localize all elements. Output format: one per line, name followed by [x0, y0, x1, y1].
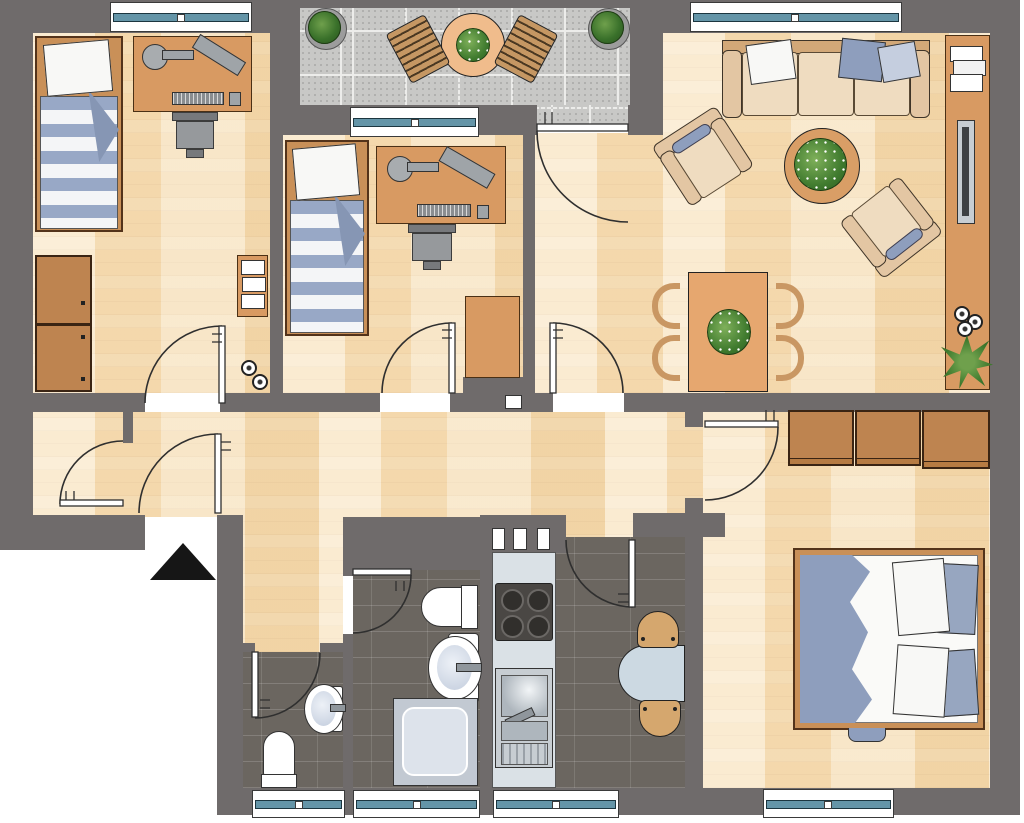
- tv-panel: [957, 120, 975, 224]
- dining-table: [688, 272, 768, 392]
- desk-lamp-arm: [162, 50, 194, 60]
- balcony-plant-right: [591, 11, 624, 44]
- bed-child-2: [285, 140, 369, 336]
- wall-shaft-pedestal: [463, 377, 523, 393]
- bed-blanket-overhang: [848, 728, 886, 742]
- desk-child-1: [133, 36, 252, 112]
- deco-candle-2: [252, 374, 268, 390]
- double-bed: [793, 548, 985, 730]
- desk-child-2: [376, 146, 506, 224]
- sofa: [722, 40, 930, 118]
- balcony-door-threshold: [537, 105, 628, 125]
- desk-chair-child-2: [408, 224, 456, 270]
- kitchen-sink: [495, 668, 553, 768]
- bed-pillow-white-2: [893, 644, 950, 717]
- bed-pillow: [292, 143, 360, 200]
- bathroom-toilet-tank: [461, 585, 478, 629]
- wardrobe-unit-1: [788, 410, 854, 466]
- chair-back: [172, 112, 218, 121]
- balcony-plant-pot-left: [305, 8, 347, 50]
- tea-candle-3: [957, 321, 973, 337]
- vent-window-1: [492, 528, 505, 550]
- door-leaf-balcony: [537, 124, 628, 131]
- window-master-bedroom: [763, 789, 894, 818]
- window-kitchen: [493, 790, 619, 818]
- chair-seat: [176, 121, 214, 149]
- towel-1: [241, 260, 265, 275]
- sofa-pillow-lightblue: [877, 41, 921, 83]
- dining-area-floor: [535, 133, 663, 393]
- sink-drainer: [501, 743, 548, 765]
- desk-keyboard: [172, 92, 224, 105]
- wardrobe-child-1: [35, 255, 92, 392]
- wall-main-a: [0, 393, 145, 412]
- window-living-room: [690, 2, 902, 32]
- desk-mouse: [477, 205, 489, 219]
- table-plant: [456, 28, 490, 62]
- kitchen-chair-top: [637, 611, 679, 648]
- wall-right: [990, 0, 1020, 815]
- balcony-table: [441, 13, 505, 77]
- desk-monitor: [192, 34, 246, 76]
- wall-divider-bedroom2-living: [523, 105, 535, 393]
- entrance-arrow: [150, 543, 216, 580]
- cabinet-child-2: [465, 296, 520, 378]
- wall-kitchen-east: [685, 537, 703, 788]
- desk-lamp-arm: [407, 162, 439, 172]
- wall-divider-bedrooms: [270, 33, 283, 412]
- wall-vent-square: [505, 395, 522, 409]
- dining-table-plant: [707, 309, 751, 355]
- shower-tray: [402, 707, 468, 776]
- balcony-plant-left: [308, 11, 341, 44]
- shower: [393, 698, 478, 786]
- kitchen-table: [618, 645, 685, 702]
- bathroom-faucet: [456, 663, 482, 672]
- book-stack: [950, 46, 986, 94]
- floor-plan: [0, 0, 1024, 823]
- wall-wc-north-right: [320, 643, 343, 652]
- chair-seat: [412, 233, 452, 261]
- desk-keyboard: [417, 204, 471, 217]
- window-bathroom: [353, 790, 480, 818]
- burner-4: [527, 615, 550, 638]
- sofa-pillow-white: [745, 39, 796, 85]
- burner-2: [527, 589, 550, 612]
- wall-main-c: [450, 393, 553, 412]
- wall-main-b: [220, 393, 380, 412]
- desk-monitor: [439, 146, 496, 189]
- wall-hall-south: [0, 515, 145, 550]
- window-child-bedroom-2: [350, 107, 479, 137]
- wall-left: [0, 0, 33, 550]
- desk-mouse: [229, 92, 241, 106]
- wc-toilet-tank: [261, 774, 297, 788]
- chair-base: [423, 261, 441, 270]
- chair-back: [408, 224, 456, 233]
- window-wc: [252, 790, 345, 818]
- desk-chair-child-1: [172, 112, 218, 158]
- shelf-child-1: [237, 255, 268, 317]
- wall-stub-bedroom-door-top: [685, 412, 703, 427]
- burner-3: [501, 615, 524, 638]
- balcony-wall-left: [283, 0, 300, 105]
- towel-3: [241, 294, 265, 309]
- coffee-table-plant: [794, 138, 847, 191]
- wc-toilet-bowl: [263, 731, 295, 777]
- wall-kitchen-north: [633, 513, 725, 537]
- wall-wc-north-left: [243, 643, 255, 652]
- window-child-bedroom-1: [110, 2, 252, 32]
- vent-window-3: [537, 528, 550, 550]
- sofa-arm-left: [722, 50, 742, 118]
- balcony-plant-pot-right: [588, 8, 630, 50]
- burner-1: [501, 589, 524, 612]
- stove: [495, 583, 553, 641]
- balcony-south-wall-2: [628, 105, 663, 135]
- chair-base: [186, 149, 204, 158]
- bed-pillow-white-1: [892, 558, 950, 636]
- towel-2: [242, 277, 266, 292]
- vent-window-2: [513, 528, 527, 550]
- deco-candle-1: [241, 360, 257, 376]
- bed-pillow: [43, 39, 113, 97]
- bed-child-1: [35, 36, 123, 232]
- wall-vestibule-bath-1: [343, 517, 353, 576]
- wall-stub-bedroom-door-bottom: [685, 498, 703, 513]
- bathroom-toilet-bowl: [421, 587, 465, 627]
- balcony-rail: [300, 0, 630, 8]
- wall-bath-north: [353, 517, 480, 570]
- wall-entry-vertical: [217, 515, 243, 815]
- wc-faucet: [330, 704, 346, 712]
- wall-stub-closet: [123, 412, 133, 443]
- wardrobe-unit-3: [922, 410, 990, 469]
- coffee-table: [784, 128, 860, 204]
- wardrobe-unit-2: [855, 410, 921, 466]
- sink-basin-small: [501, 721, 548, 741]
